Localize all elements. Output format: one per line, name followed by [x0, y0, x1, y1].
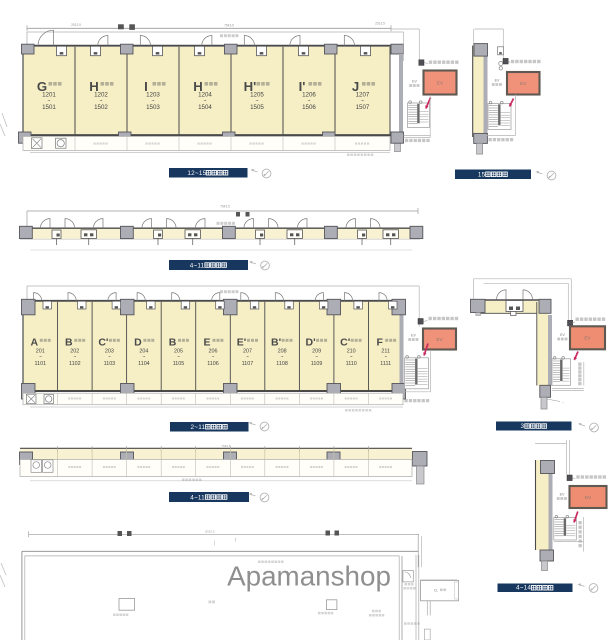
svg-text:1101: 1101: [35, 361, 47, 367]
svg-text:1505: 1505: [250, 104, 264, 111]
svg-text:~: ~: [350, 354, 353, 359]
svg-text:C': C': [340, 337, 350, 349]
svg-text:12~15: 12~15: [187, 170, 206, 177]
svg-text:~: ~: [73, 354, 76, 359]
svg-text:1102: 1102: [69, 361, 81, 367]
svg-text:3: 3: [521, 423, 525, 430]
svg-text:~: ~: [562, 401, 564, 405]
svg-text:~: ~: [177, 354, 180, 359]
svg-text:1501: 1501: [42, 104, 56, 111]
svg-text:2513.5: 2513.5: [71, 23, 81, 27]
svg-text:EV: EV: [585, 495, 592, 500]
svg-text:1104: 1104: [138, 361, 150, 367]
svg-text:1503: 1503: [146, 104, 160, 111]
svg-text:EV: EV: [436, 337, 443, 342]
svg-text:EV: EV: [437, 80, 444, 85]
svg-text:~: ~: [212, 354, 215, 359]
svg-text:B': B': [271, 337, 281, 349]
svg-text:7543.5: 7543.5: [221, 444, 231, 448]
svg-text:~: ~: [384, 354, 387, 359]
svg-text:7543.5: 7543.5: [220, 205, 230, 209]
svg-text:~: ~: [246, 354, 249, 359]
svg-text:Apamanshop: Apamanshop: [227, 561, 391, 592]
svg-text:1204: 1204: [198, 92, 212, 99]
svg-text:1109: 1109: [311, 361, 323, 367]
svg-text:7543.5: 7543.5: [224, 24, 234, 28]
svg-text:1106: 1106: [207, 361, 219, 367]
svg-text:1206: 1206: [302, 92, 316, 99]
svg-text:C': C': [98, 337, 108, 349]
svg-text:15: 15: [478, 172, 486, 179]
svg-text:EV: EV: [560, 333, 565, 337]
svg-text:D: D: [134, 337, 142, 349]
svg-text:~: ~: [39, 354, 42, 359]
svg-text:1110: 1110: [346, 361, 357, 367]
svg-text:B: B: [65, 337, 73, 349]
svg-text:8215.5: 8215.5: [205, 530, 215, 534]
svg-text:1205: 1205: [250, 92, 264, 99]
svg-text:1105: 1105: [173, 361, 185, 367]
svg-text:D': D': [306, 337, 316, 349]
svg-text:1504: 1504: [198, 104, 212, 111]
svg-text:CL: CL: [434, 589, 438, 593]
svg-text:EV: EV: [412, 80, 417, 84]
svg-text:1103: 1103: [104, 361, 116, 367]
svg-text:A: A: [31, 337, 39, 349]
svg-text:~: ~: [281, 354, 284, 359]
svg-text:~: ~: [108, 354, 111, 359]
svg-text:1107: 1107: [242, 361, 254, 367]
svg-text:EV: EV: [495, 79, 500, 83]
svg-text:EV: EV: [560, 493, 565, 497]
svg-text:1111: 1111: [380, 361, 391, 367]
svg-text:1502: 1502: [94, 104, 108, 111]
svg-text:B: B: [169, 337, 177, 349]
svg-text:1507: 1507: [356, 104, 370, 111]
svg-text:1203: 1203: [146, 92, 160, 99]
svg-text:EV: EV: [584, 336, 591, 341]
svg-text:E': E': [237, 337, 247, 349]
svg-text:~: ~: [315, 354, 318, 359]
svg-text:EV: EV: [520, 81, 527, 86]
svg-text:2513.5: 2513.5: [375, 22, 385, 26]
svg-text:E: E: [203, 337, 210, 349]
svg-text:1207: 1207: [356, 92, 370, 99]
svg-text:1506: 1506: [302, 104, 316, 111]
svg-text:EV: EV: [411, 334, 416, 338]
svg-text:4~14: 4~14: [516, 585, 531, 592]
svg-text:F: F: [376, 337, 383, 349]
svg-text:1108: 1108: [276, 361, 288, 367]
svg-text:4~11: 4~11: [190, 263, 205, 270]
svg-text:1201: 1201: [42, 92, 56, 99]
svg-text:1202: 1202: [94, 92, 108, 99]
svg-text:~: ~: [143, 354, 146, 359]
svg-text:2~11: 2~11: [191, 424, 206, 431]
svg-text:4~11: 4~11: [190, 495, 205, 502]
